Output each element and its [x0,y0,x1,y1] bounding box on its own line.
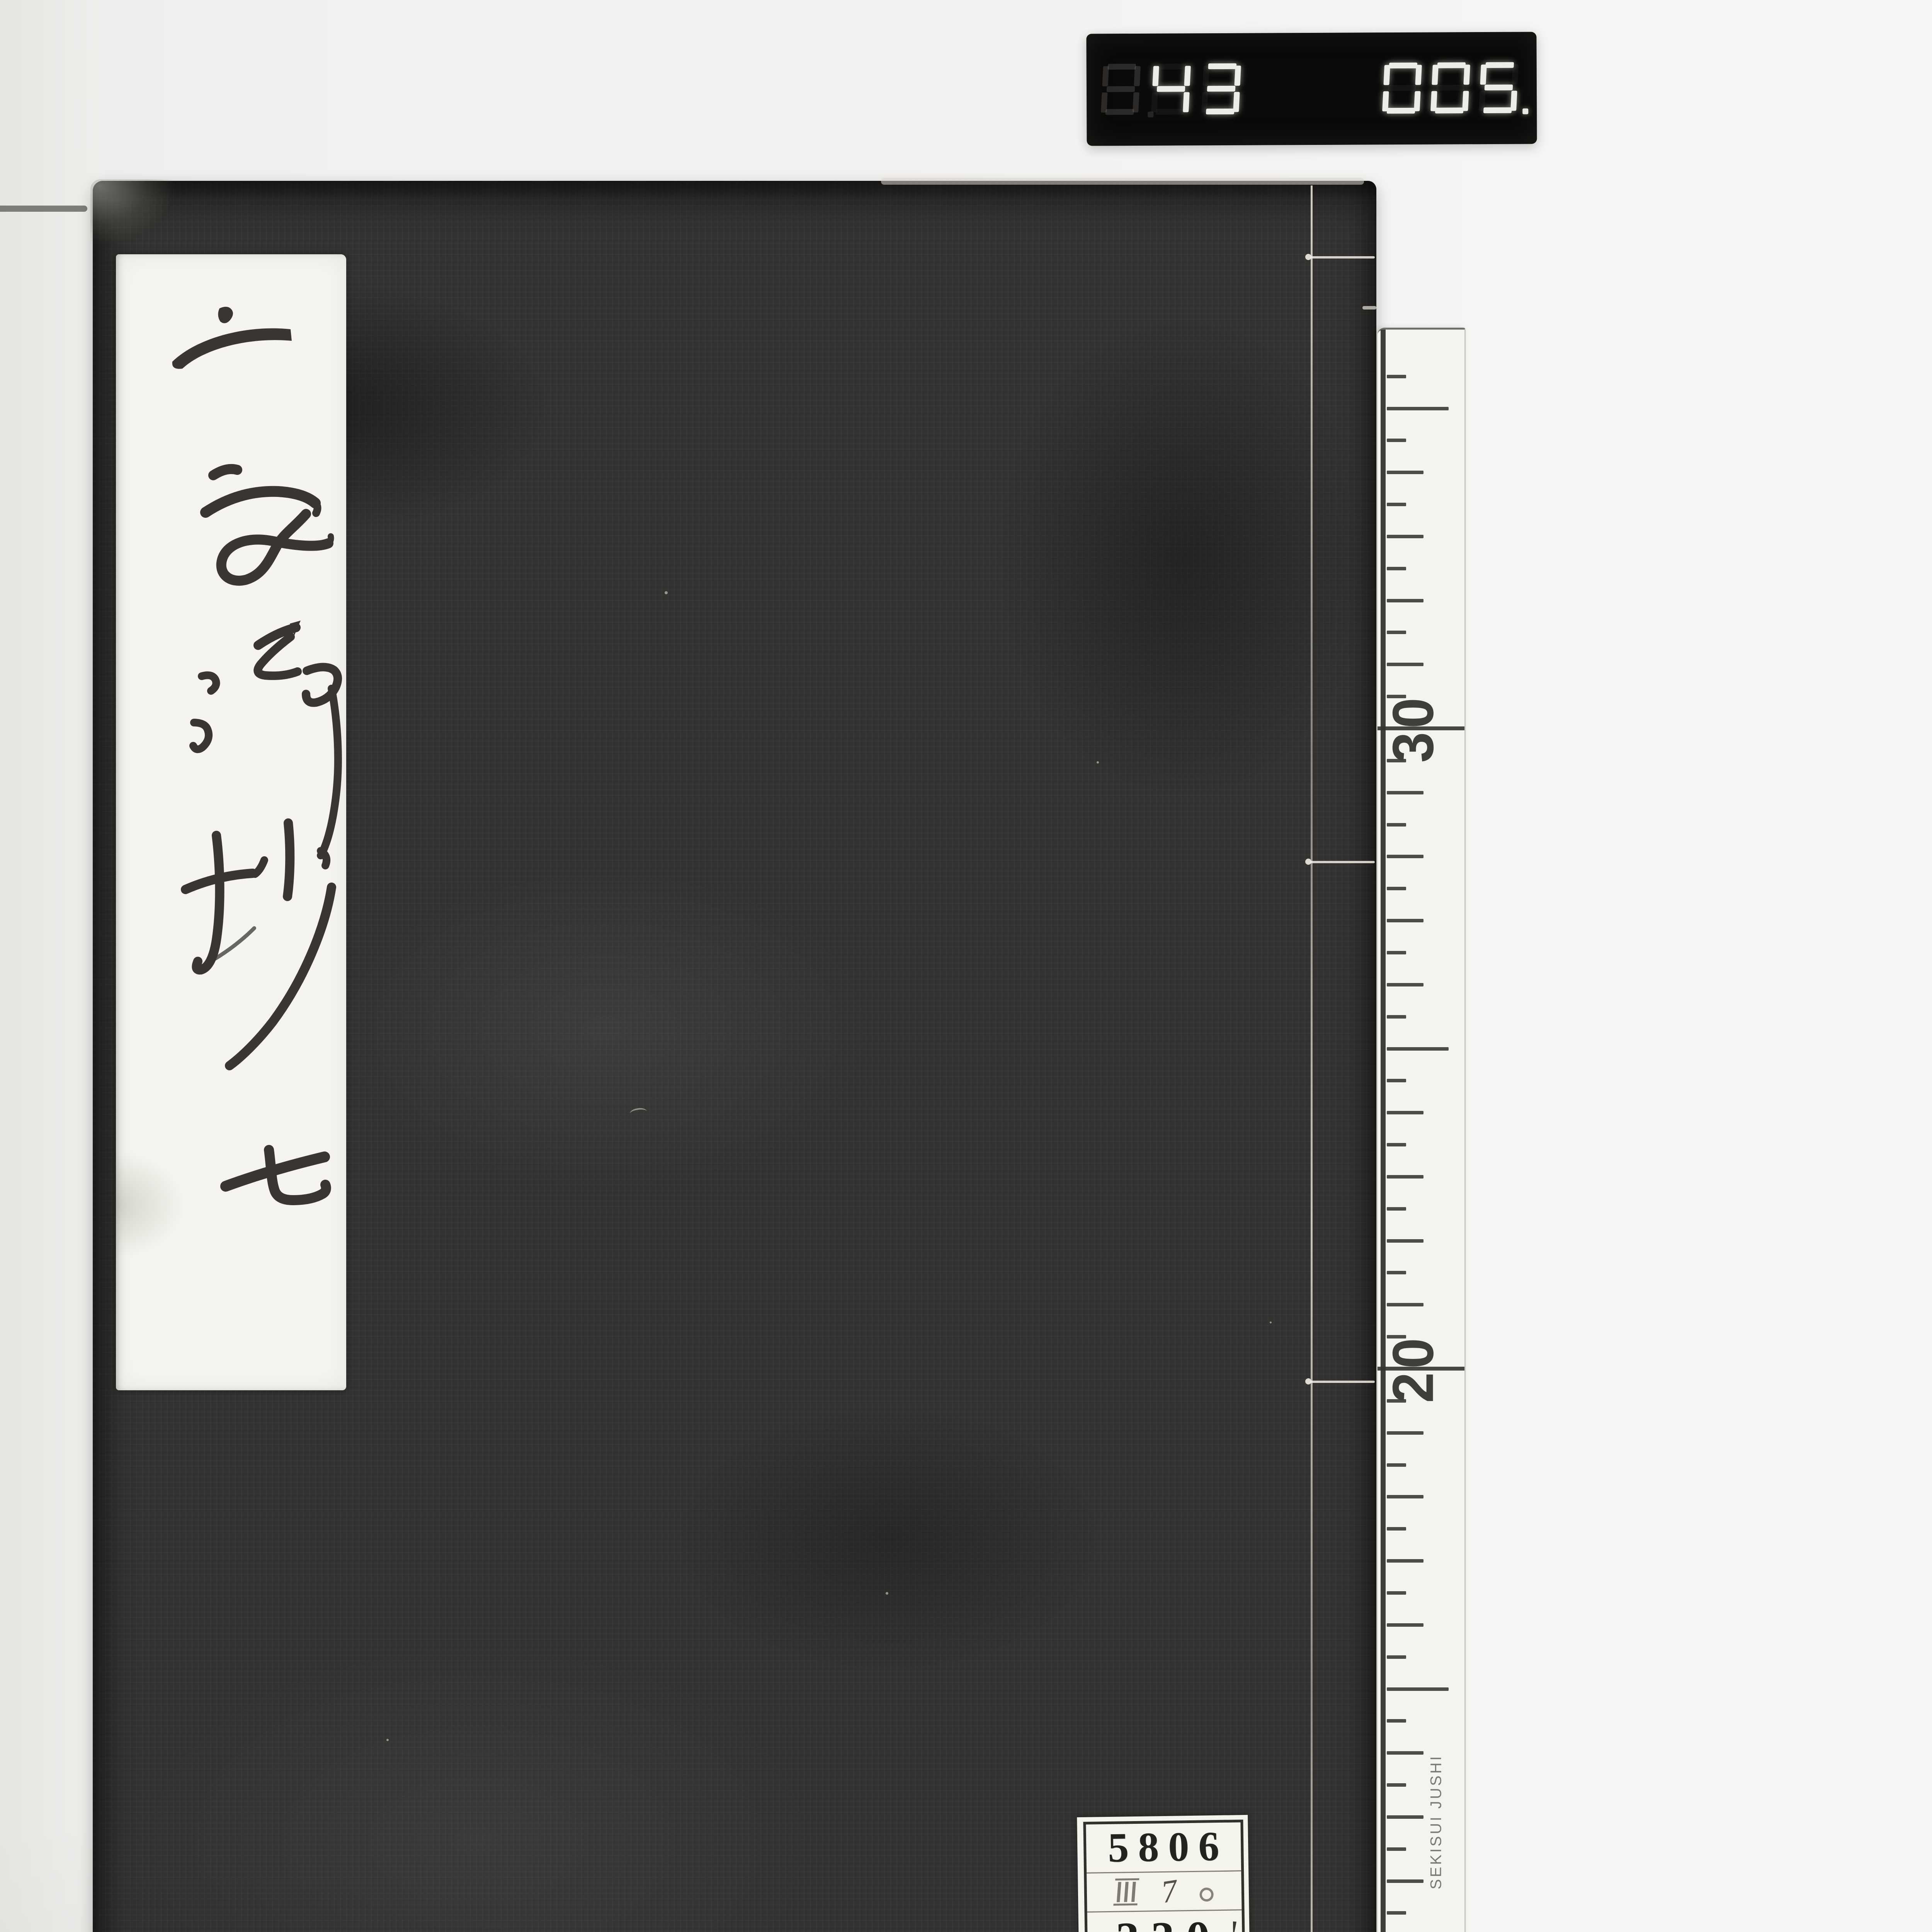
ruler-tick [1387,535,1423,538]
segment-d [1105,109,1134,115]
counter-digit-5 [1479,62,1519,113]
frame-counter-display [1086,32,1537,146]
ruler-tick [1387,1847,1406,1851]
binding-stitch [1310,1381,1375,1383]
segment-e [1382,91,1389,111]
title-slip: 一字御抄 七 [116,254,346,1390]
ruler-tick [1387,855,1423,858]
counter-digit-0 [1430,62,1470,113]
ruler-tick [1387,503,1406,506]
ruler-tick [1387,951,1406,954]
calligraphy-title [116,254,346,1390]
ruler-tick [1387,983,1423,986]
segment-b [1234,66,1241,86]
calligraphy-char-ichi [172,328,292,369]
ruler-tick [1387,1719,1406,1723]
ruler-tick [1387,439,1406,442]
segment-f [1152,66,1159,86]
ruler-tick [1387,1623,1423,1627]
ruler-tick [1387,1175,1423,1179]
vertical-ruler-edge-line [1381,330,1386,1932]
catalog-number: 5806 [1098,1823,1229,1872]
ruler-tick [1387,1783,1406,1787]
dust-speck [386,1739,389,1741]
ruler-tick [1387,1815,1423,1819]
ruler-tick [1387,1463,1406,1467]
segment-b [1512,65,1518,85]
segment-a [1158,63,1186,69]
segment-d [1206,109,1235,114]
vertical-ruler: SEKISUI JUSHI 30200 [1378,328,1466,1932]
ruler-tick [1387,1655,1406,1659]
ghost-decimal-dot [1148,112,1153,117]
handwritten-seven: 7 [1158,1872,1180,1910]
segment-a [1389,63,1417,68]
decimal-dot [1522,109,1528,114]
segment-f [1480,65,1486,85]
segment-g [1388,85,1417,91]
catalog-row-1: 5806 [1086,1822,1241,1872]
dust-speck [886,1592,888,1595]
ruler-tick [1387,823,1406,827]
manuscript-book-cover: 一字御抄 七 5806 7 Ⅲ 330 ! [93,181,1376,1932]
segment-g [1107,86,1135,92]
segment-b [1134,66,1140,86]
ruler-tick [1387,1143,1406,1146]
cover-scratch [629,1107,648,1118]
ink-tick-mark: ! [1229,1916,1239,1932]
ruler-tick [1387,1431,1423,1435]
ruler-tick [1387,791,1423,794]
counter-digit-3 [1201,63,1241,114]
cover-edge-nick [1362,306,1376,310]
catalog-row-2: 7 Ⅲ [1087,1870,1242,1912]
vertical-ruler-label-30: 30 [1380,694,1447,763]
archival-photograph: 一字御抄 七 5806 7 Ⅲ 330 ! [0,0,1932,1932]
segment-e [1201,92,1208,112]
calligraphy-char-go [193,621,338,855]
ruler-tick [1387,631,1406,634]
segment-a [1107,64,1136,70]
ruler-tick [1387,1911,1406,1915]
segment-g [1436,85,1465,90]
calligraphy-char-sho [185,823,332,1066]
small-circle-mark [1198,1886,1214,1903]
segment-g [1157,86,1185,92]
ruler-tick [1387,919,1423,922]
segment-a [1485,62,1514,68]
calligraphy-dot [218,307,233,323]
segment-e [1479,91,1485,111]
segment-f [1102,66,1109,86]
ruler-tick [1387,1047,1449,1051]
film-edge-mark [0,206,87,212]
ruler-tick [1387,1239,1423,1243]
binding-stitch [1310,861,1375,863]
segment-a [1437,62,1466,68]
ruler-tick [1387,471,1423,474]
ruler-tick [1387,1207,1406,1211]
ruler-tick [1387,1559,1423,1563]
ruler-tick [1387,1015,1406,1019]
ruler-tick [1387,567,1406,570]
dust-speck [1270,1321,1272,1323]
segment-g [1207,86,1236,92]
page-edges-highlight [881,178,1364,185]
segment-d [1156,109,1184,114]
calligraphy-char-ji [206,469,331,581]
segment-f [1383,65,1390,85]
ruler-tick [1387,599,1423,602]
ruler-tick [1387,407,1449,410]
segment-f [1432,65,1438,85]
segment-e [1101,92,1107,112]
segment-b [1463,65,1470,85]
ruler-tick [1387,1495,1423,1498]
counter-digit-0 [1382,63,1422,114]
dust-speck [665,591,668,594]
binding-thread [1311,185,1313,1932]
segment-d [1435,107,1464,113]
ruler-tick [1387,1271,1406,1274]
ruler-tick [1387,1687,1449,1691]
counter-digit-4 [1151,63,1191,114]
ghost-digit-8 [1101,64,1141,115]
ruler-tick [1387,1111,1423,1114]
catalog-label: 5806 7 Ⅲ 330 ! [1077,1815,1250,1932]
segment-g [1485,85,1513,90]
ruler-brand-text: SEKISUI JUSHI [1428,1754,1445,1889]
ruler-tick [1387,1303,1423,1306]
ruler-tick [1387,375,1406,378]
roman-numeral-three [1113,1878,1139,1906]
calligraphy-volume-shichi [226,1150,326,1200]
segment-f [1202,66,1209,86]
segment-e [1151,92,1158,112]
ruler-tick [1387,887,1406,890]
ruler-tick [1387,1079,1406,1082]
segment-b [1184,66,1190,86]
catalog-row-3: 330 ! [1087,1909,1243,1932]
ruler-tick [1387,1527,1406,1531]
shelf-number: 330 [1108,1911,1222,1932]
segment-d [1483,107,1512,113]
ruler-tick [1387,1879,1423,1883]
ruler-tick [1387,1591,1406,1595]
segment-e [1430,91,1437,111]
segment-d [1387,108,1415,114]
binding-stitch [1310,256,1375,259]
catalog-label-border: 5806 7 Ⅲ 330 ! [1083,1820,1245,1932]
seven-segment-digits [1086,32,1536,34]
vertical-ruler-label-20: 20 [1380,1334,1447,1403]
segment-a [1208,63,1236,69]
segment-b [1415,65,1422,85]
ruler-tick [1387,663,1423,666]
dust-speck [1097,761,1099,764]
cover-corner-wear [90,179,175,245]
ruler-tick [1387,1751,1423,1755]
